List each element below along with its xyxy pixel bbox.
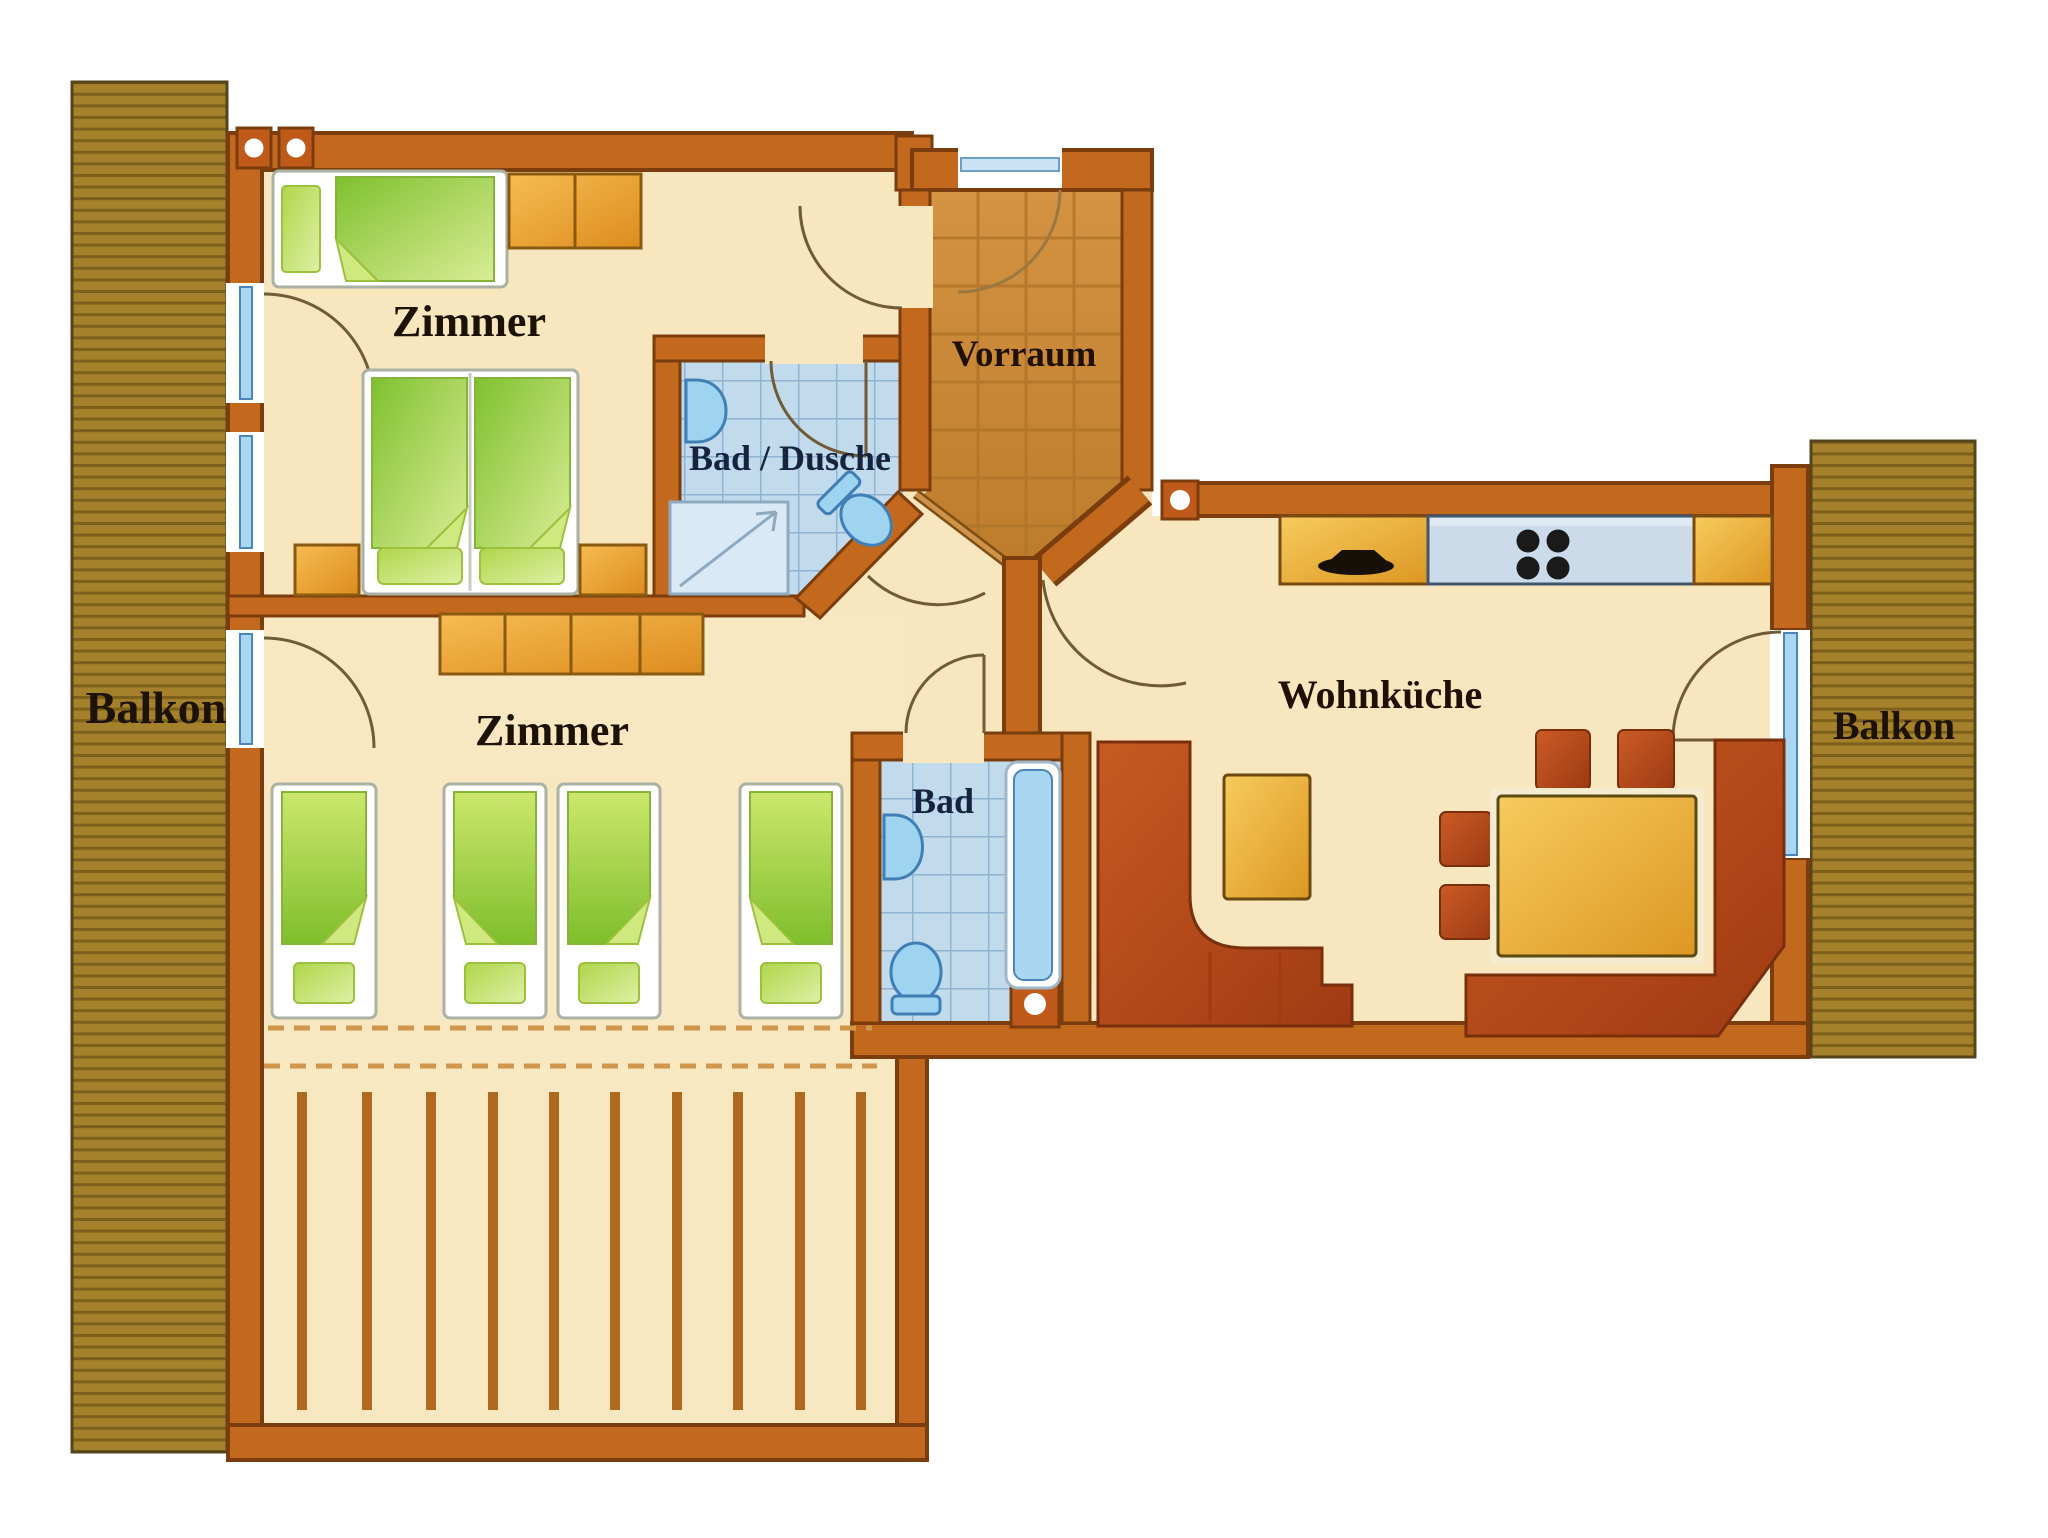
svg-text:Bad: Bad <box>912 781 974 821</box>
svg-text:Balkon: Balkon <box>1833 703 1955 748</box>
svg-text:Bad / Dusche: Bad / Dusche <box>689 438 891 478</box>
svg-text:Balkon: Balkon <box>86 682 227 733</box>
svg-text:Zimmer: Zimmer <box>392 297 546 346</box>
svg-text:Vorraum: Vorraum <box>952 334 1097 375</box>
svg-text:Wohnküche: Wohnküche <box>1278 672 1483 717</box>
svg-text:Zimmer: Zimmer <box>475 706 629 755</box>
